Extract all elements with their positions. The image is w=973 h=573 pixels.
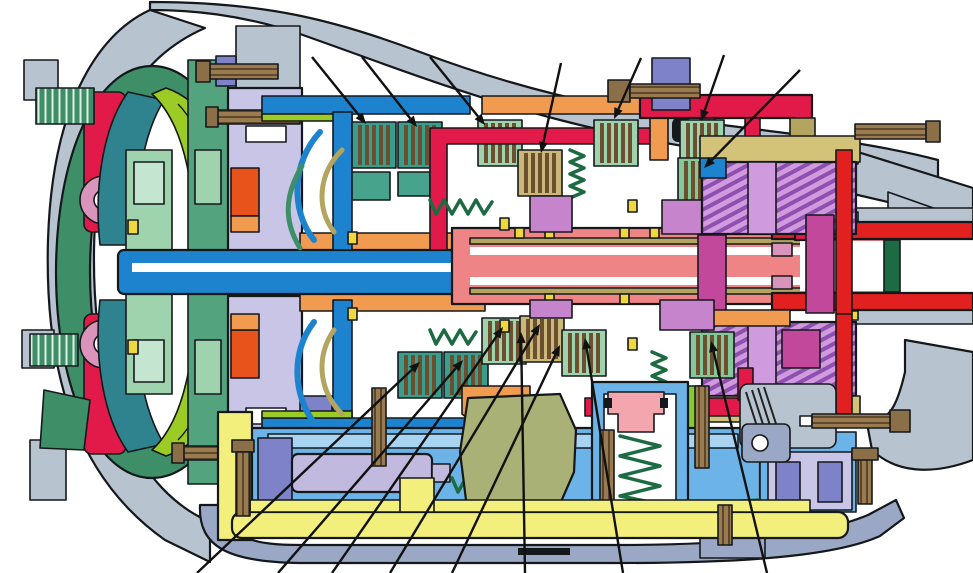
clutch-piston-orchid: [530, 300, 572, 318]
extension-housing-lower: [866, 340, 973, 470]
front-drum-wall: [333, 112, 352, 250]
coil-spring: [570, 150, 584, 198]
clutch-piston: [398, 172, 430, 196]
stator-hub-upper: [134, 162, 164, 204]
hub-seal: [128, 220, 138, 234]
output-spacer: [884, 240, 900, 292]
seal-ring: [348, 308, 357, 320]
front-bolt: [236, 452, 250, 516]
shaft-tube: [470, 288, 820, 294]
top-right-bolt: [855, 124, 929, 139]
pump-rotor-lower: [231, 330, 259, 378]
output-drum-bar: [836, 150, 852, 314]
solenoid-core: [776, 462, 800, 502]
seal-ring: [620, 228, 629, 238]
coil-spring: [430, 330, 476, 344]
clutch-piston-magenta: [782, 330, 820, 368]
pump-bolt: [208, 64, 278, 79]
seal-ring: [620, 294, 629, 304]
solenoid-core: [818, 462, 842, 502]
hub-block: [195, 340, 221, 394]
transmission-cutaway-diagram: [0, 0, 973, 573]
rear-stud: [858, 458, 872, 504]
top-right-bolt-head: [926, 121, 940, 142]
lower-clutch-pack-5: [562, 330, 606, 376]
front-bolt-head: [232, 440, 254, 452]
vb-stud: [695, 386, 709, 468]
lower-clutch-pack-6: [690, 332, 734, 378]
front-cover-spring-bracket: [30, 334, 78, 366]
clutch-pack-1: [352, 122, 396, 168]
pump-crescent-upper: [231, 216, 259, 232]
seal-ring: [628, 338, 637, 350]
pump-crescent-lower: [231, 314, 259, 330]
output-sleeve-bottom: [772, 293, 973, 310]
seal-ring: [515, 228, 524, 238]
mount-bolt: [718, 505, 732, 545]
clutch-piston-orchid: [660, 300, 714, 330]
output-drum-bar: [836, 314, 852, 414]
front-cover-spring-bracket: [36, 88, 94, 124]
pump-bolt-head: [172, 443, 184, 463]
pump-support-web: [236, 26, 300, 92]
shaft-tube: [470, 238, 820, 244]
output-spline: [772, 276, 792, 289]
clutch-piston: [352, 172, 390, 200]
coil-spring: [652, 352, 666, 382]
sensor-eye: [752, 435, 768, 451]
bolt-tip: [800, 416, 812, 426]
top-bolt: [630, 84, 700, 98]
output-spline: [772, 243, 792, 256]
hub-seal: [128, 340, 138, 354]
clutch-pack-5: [594, 120, 638, 166]
seal-ring: [628, 200, 637, 212]
rear-bolt-head: [890, 410, 910, 432]
hub-block: [195, 150, 221, 204]
front-drum-rail: [262, 96, 470, 114]
seal-ring: [348, 232, 357, 244]
clutch-piston-orchid: [530, 196, 572, 232]
piston-seal: [660, 398, 668, 408]
pump-bolt-head: [196, 61, 210, 82]
seal-ring: [500, 218, 509, 230]
pump-gallery: [246, 126, 286, 142]
diagram-canvas: [0, 0, 973, 573]
pump-rotor-upper: [231, 168, 259, 216]
clutch-pack-4: [518, 150, 562, 196]
rear-bolt: [812, 414, 892, 428]
pump-bolt-head: [206, 107, 218, 127]
seal-ring: [650, 228, 659, 238]
detent-lever: [460, 394, 576, 512]
rear-stud-head: [852, 448, 878, 460]
carrier-plate: [806, 215, 834, 313]
sun-gear-band: [748, 162, 776, 234]
flexplate-arm: [40, 390, 90, 450]
gear-bracket: [700, 158, 726, 178]
input-shaft-bore: [132, 263, 454, 272]
manual-valve-cap: [258, 438, 292, 506]
piston-seal: [604, 398, 612, 408]
